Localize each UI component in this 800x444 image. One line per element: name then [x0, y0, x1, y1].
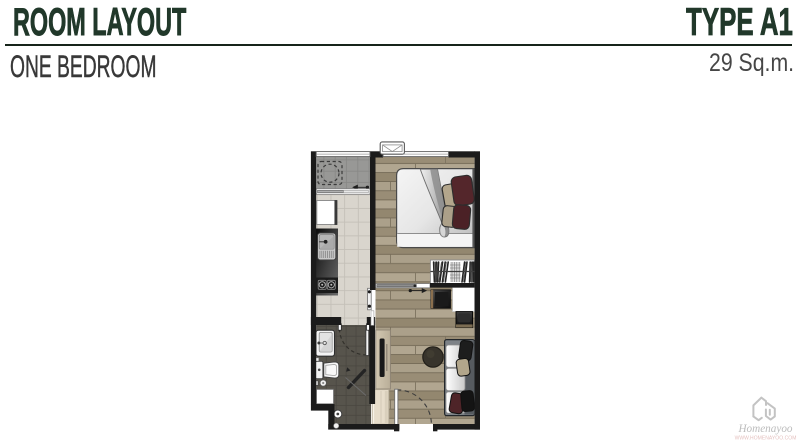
svg-text:Homenayoo: Homenayoo: [737, 423, 792, 435]
svg-text:WWW.HOMENAYOO.COM: WWW.HOMENAYOO.COM: [735, 435, 797, 441]
